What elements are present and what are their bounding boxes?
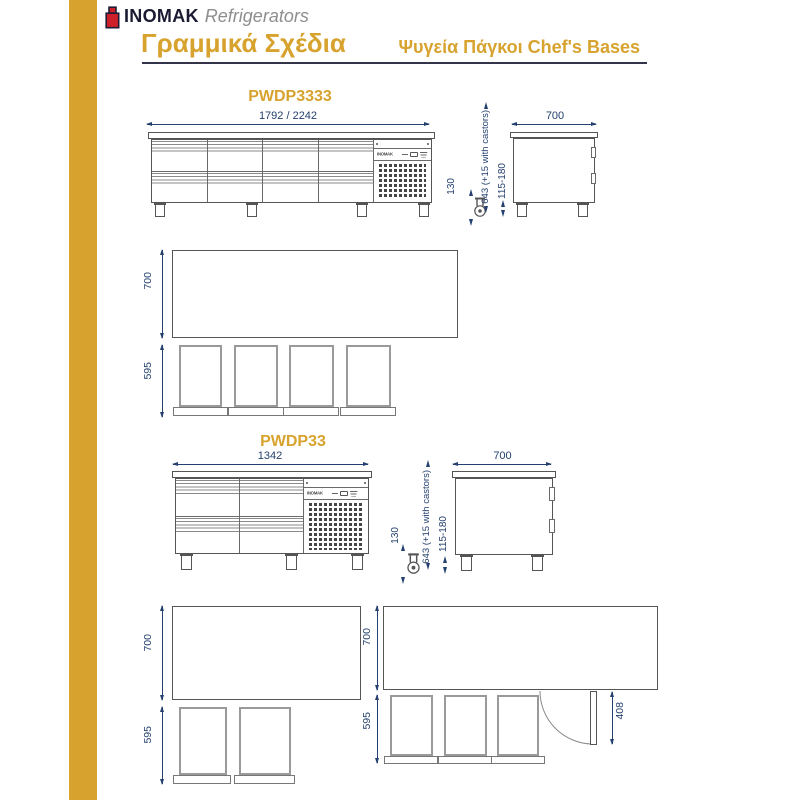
arrowhead [501, 200, 505, 207]
dim-width: 1342 [230, 450, 310, 462]
arrowhead [363, 462, 369, 466]
gold-accent-bar [69, 0, 97, 800]
drawer-section [176, 479, 240, 553]
ventilation-grille [309, 503, 363, 550]
arrowhead [146, 122, 152, 126]
worktop-plan [383, 606, 658, 690]
leg [155, 203, 165, 217]
dim-depth: 700 [520, 110, 590, 122]
drawer-front [208, 140, 263, 172]
dim-drawer-depth: 595 [143, 362, 154, 380]
arrowhead [375, 605, 379, 611]
drawer-section [319, 140, 375, 202]
drawer-handle-rails [240, 518, 303, 532]
brand-suffix: Refrigerators [205, 6, 309, 27]
dim-line-plan-depth [162, 250, 163, 338]
arrowhead [160, 344, 164, 350]
arrowhead [160, 695, 164, 701]
drawer-front [176, 517, 239, 554]
compressor-top-panel [374, 140, 431, 149]
arrowhead [469, 219, 473, 226]
drawer-handle-rails [319, 141, 374, 153]
arrowhead [610, 739, 614, 745]
drawer-front-plan [228, 407, 284, 416]
leg [517, 203, 527, 217]
leg [461, 555, 472, 571]
arrowhead [160, 412, 164, 418]
drawer-front [240, 479, 303, 517]
drawer-plan [179, 345, 222, 407]
dim-line-depth [453, 464, 551, 465]
drawer-section [152, 140, 208, 202]
drawer-front-plan [283, 407, 339, 416]
drawer-handle-rails [319, 173, 374, 185]
drawer-section [263, 140, 319, 202]
drawer-front-plan [384, 756, 438, 764]
dim-plan-depth: 700 [143, 272, 154, 290]
cabinet-body: INOMAK [175, 478, 369, 554]
header-divider [142, 62, 647, 64]
drawer-handle-rails [152, 173, 207, 185]
compressor-top-panel [304, 479, 368, 488]
screw-icon [306, 482, 308, 484]
screw-icon [427, 143, 429, 145]
leg [352, 554, 363, 570]
dim-leg-height: 115-180 [438, 516, 449, 552]
arrowhead [591, 122, 597, 126]
dim-drawer-depth: 595 [362, 712, 373, 730]
fan-icon [350, 491, 358, 497]
drawer-section [240, 479, 304, 553]
screw-icon [376, 143, 378, 145]
dim-plan-depth: 700 [143, 634, 154, 652]
drawer-handle-rails [152, 141, 207, 153]
leg [532, 555, 543, 571]
model-title-pwdp3333: PWDP3333 [140, 88, 440, 106]
dim-overall-height: 643 (+15 with castors) [480, 110, 491, 204]
arrowhead [546, 462, 552, 466]
drawer-handle-rails [176, 480, 239, 494]
arrowhead [160, 605, 164, 611]
drawer-front-plan [491, 756, 545, 764]
drawer-plan [234, 345, 278, 407]
drawer-section [208, 140, 264, 202]
leg [286, 554, 297, 570]
brand-name: INOMAK [124, 6, 199, 27]
drawer-front [176, 479, 239, 517]
dim-line-plan-depth [377, 606, 378, 690]
arrowhead [426, 460, 430, 467]
compressor-brand-label: INOMAK [307, 491, 323, 495]
drawer-handle-rails [176, 518, 239, 532]
arrowhead [443, 567, 447, 574]
arrowhead [375, 694, 379, 700]
dim-castor-height: 130 [446, 178, 457, 195]
model-title-pwdp33: PWDP33 [140, 433, 446, 451]
dim-line-plan-depth [162, 606, 163, 700]
arrowhead [375, 758, 379, 764]
arrowhead [375, 685, 379, 691]
drawer-front [152, 140, 207, 172]
arrowhead [452, 462, 458, 466]
leg [578, 203, 588, 217]
drawer-plan [239, 707, 291, 775]
arrowhead [160, 779, 164, 785]
drawer-handle-rails [263, 141, 318, 153]
hinge [591, 147, 596, 158]
drawer-plan [179, 707, 227, 775]
hinge [549, 519, 555, 533]
cabinet-side [455, 478, 553, 555]
drawer-front [208, 172, 263, 203]
fan-icon [420, 152, 428, 158]
drawer-plan [390, 695, 433, 756]
dim-line-drawer-depth [162, 707, 163, 784]
grille-area [304, 500, 368, 553]
arrowhead [160, 249, 164, 255]
divider-line [332, 493, 338, 494]
worktop [452, 471, 556, 478]
leg [419, 203, 429, 217]
arrowhead [424, 122, 430, 126]
dim-line-drawer-depth [162, 345, 163, 417]
leg [181, 554, 192, 570]
dim-line-width [173, 464, 368, 465]
drawer-handle-rails [240, 480, 303, 494]
leg [247, 203, 257, 217]
display-icon [340, 491, 348, 496]
drawer-front-plan [340, 407, 396, 416]
control-panel: INOMAK [374, 149, 431, 161]
worktop [148, 132, 435, 139]
worktop [172, 471, 372, 478]
compressor-unit: INOMAK [304, 479, 368, 553]
drawer-handle-rails [208, 141, 263, 153]
castor-icon [405, 552, 422, 577]
drawer-plan [289, 345, 334, 407]
display-icon [410, 152, 418, 157]
dim-width: 1792 / 2242 [238, 110, 338, 122]
hinge [549, 487, 555, 501]
brand-lockup: INOMAK Refrigerators [124, 6, 309, 27]
control-panel: INOMAK [304, 488, 368, 500]
hinge [591, 173, 596, 184]
drawer-front-plan [173, 407, 228, 416]
divider-line [402, 154, 408, 155]
drawer-front-plan [234, 775, 295, 784]
drawer-front [319, 140, 374, 172]
dim-leg-height: 115-180 [497, 163, 508, 199]
category-title: Ψυγεία Πάγκοι Chef's Bases [380, 37, 640, 58]
drawer-front-plan [173, 775, 231, 784]
dim-depth: 700 [460, 450, 545, 462]
dim-line-door-swing [612, 692, 613, 744]
cabinet-body: INOMAK [151, 139, 432, 203]
arrowhead [501, 210, 505, 217]
arrowhead [610, 691, 614, 697]
worktop-plan [172, 250, 458, 338]
dim-plan-depth: 700 [362, 628, 373, 646]
arrowhead [426, 563, 430, 570]
arrowhead [469, 189, 473, 196]
drawer-plan [346, 345, 391, 407]
catalog-page: INOMAK Refrigerators Γραμμικά Σχέδια Ψυγ… [0, 0, 800, 800]
dim-overall-height: 643 (+15 with castors) [421, 470, 432, 564]
leg [357, 203, 367, 217]
drawer-front [240, 517, 303, 554]
arrowhead [172, 462, 178, 466]
dim-line-drawer-depth [377, 695, 378, 763]
drawer-handle-rails [208, 173, 263, 185]
drawer-front [319, 172, 374, 203]
dim-line-depth [512, 124, 596, 125]
arrowhead [401, 577, 405, 584]
compressor-unit: INOMAK [374, 140, 431, 202]
arrowhead [401, 544, 405, 551]
dim-drawer-depth: 595 [143, 726, 154, 744]
drawer-handle-rails [263, 173, 318, 185]
arrowhead [160, 706, 164, 712]
grille-area [374, 161, 431, 202]
page-title: Γραμμικά Σχέδια [141, 28, 346, 59]
inomak-logo-icon [105, 6, 120, 29]
dim-door-swing: 408 [615, 702, 626, 720]
arrowhead [160, 333, 164, 339]
arrowhead [484, 206, 488, 213]
arrowhead [443, 556, 447, 563]
arrowhead [484, 102, 488, 109]
worktop-plan [172, 606, 361, 700]
ventilation-grille [379, 164, 426, 199]
screw-icon [364, 482, 366, 484]
compressor-brand-label: INOMAK [377, 152, 393, 156]
drawer-front-plan [438, 756, 492, 764]
drawer-front [263, 140, 318, 172]
door-plan [590, 691, 597, 745]
dim-line-width [147, 124, 429, 125]
drawer-front [263, 172, 318, 203]
dim-castor-height: 130 [390, 527, 401, 544]
drawer-plan [444, 695, 487, 756]
cabinet-side [513, 138, 595, 203]
drawer-front [152, 172, 207, 203]
arrowhead [511, 122, 517, 126]
